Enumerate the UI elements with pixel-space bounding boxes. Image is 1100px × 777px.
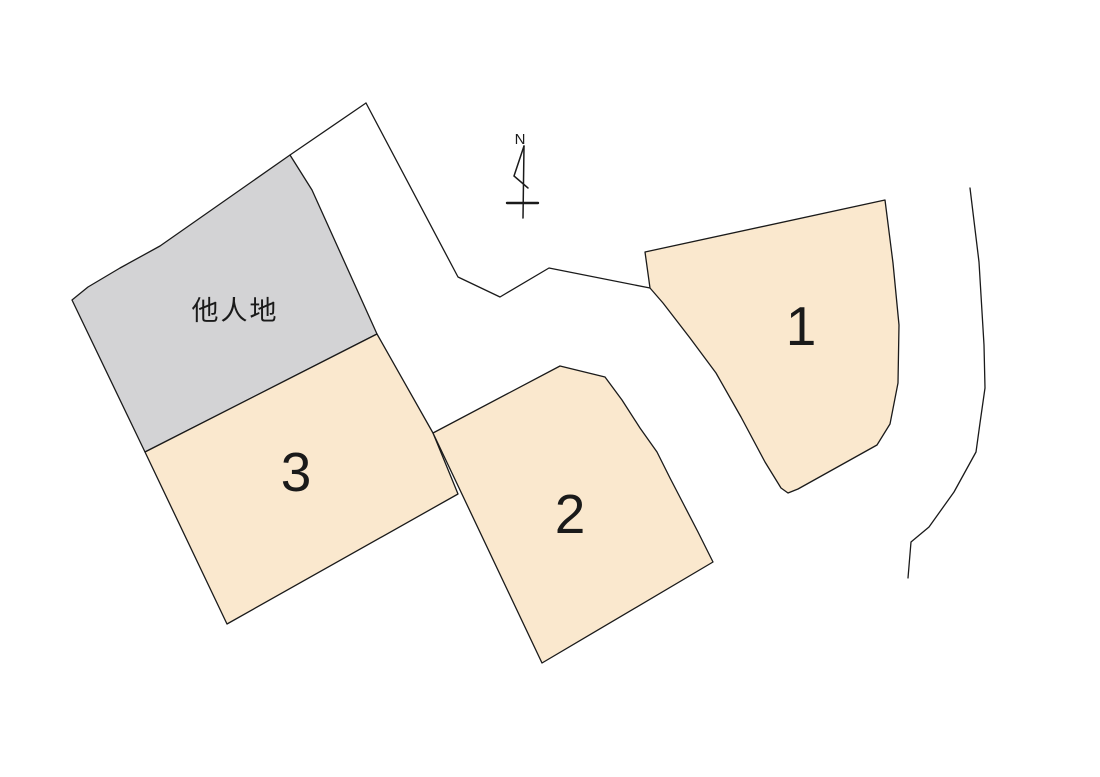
road-edge-top-line xyxy=(290,103,366,155)
site-plan-page: 1 2 3 他人地 N xyxy=(0,0,1100,777)
parcel-2-label: 2 xyxy=(555,483,586,545)
north-arrow-head xyxy=(514,146,528,188)
north-compass: N xyxy=(507,131,538,218)
parcel-1-shape xyxy=(645,200,899,493)
parcel-1-label: 1 xyxy=(786,295,817,357)
other-land-label: 他人地 xyxy=(192,296,279,326)
land-plot-diagram: 1 2 3 他人地 N xyxy=(0,0,1100,777)
north-arrow-stem xyxy=(523,146,524,218)
road-edge-right-line xyxy=(908,188,985,578)
parcel-3-label: 3 xyxy=(281,441,312,503)
road-edge-middle-line xyxy=(366,103,650,297)
diagram-root: 1 2 3 他人地 N xyxy=(72,103,985,663)
